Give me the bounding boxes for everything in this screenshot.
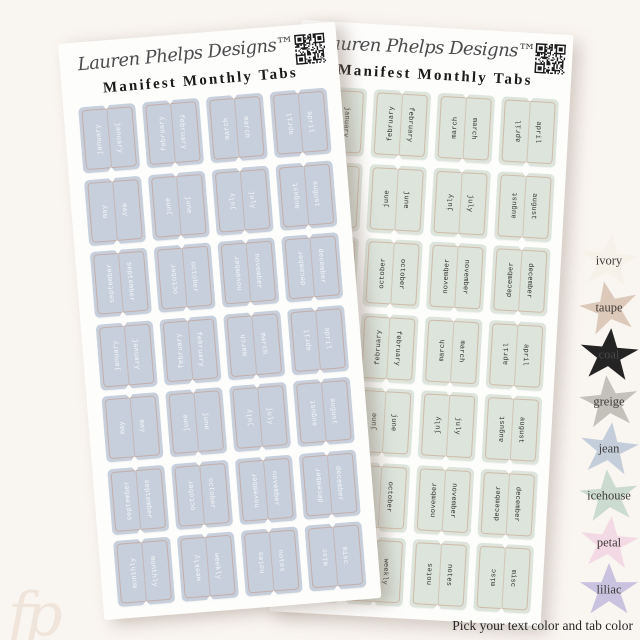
qr-code-icon xyxy=(294,33,326,65)
sticker-sheet-jean: Lauren Phelps Designs™ Manifest Monthly … xyxy=(58,22,381,620)
tab-label: july xyxy=(453,417,461,435)
tab-label-reversed: july xyxy=(229,192,237,210)
month-tab: september september xyxy=(107,464,169,534)
tab-fold-line xyxy=(315,311,321,369)
tab-label: march xyxy=(241,116,250,139)
tab-label: february xyxy=(177,115,187,151)
tab-fold-line xyxy=(501,548,505,608)
tab-fold-line xyxy=(135,471,141,529)
tab-fold-line xyxy=(193,393,199,451)
month-tab: november november xyxy=(413,465,474,536)
tab-fold-line xyxy=(304,166,310,224)
month-tab: weekly weekly xyxy=(176,532,238,602)
tab-fold-line xyxy=(378,467,382,527)
tab-label: december xyxy=(512,486,521,522)
tab-fold-line xyxy=(446,396,450,456)
month-tab: february february xyxy=(357,312,418,383)
month-tab: november november xyxy=(426,241,487,312)
tab-label: february xyxy=(194,331,204,367)
tab-label: weekly xyxy=(380,558,388,585)
tab-fold-line xyxy=(454,247,458,307)
tab-label-reversed: november xyxy=(430,482,439,518)
tab-fold-line xyxy=(251,316,257,374)
tab-label: october xyxy=(206,478,215,509)
swatch-label: ivory xyxy=(580,253,638,268)
tab-label-reversed: february xyxy=(159,116,169,152)
tab-label-reversed: november xyxy=(234,255,244,291)
tab-label-reversed: december xyxy=(506,262,515,298)
month-tab: november november xyxy=(217,237,279,307)
tab-label-reversed: april xyxy=(304,329,313,352)
tab-label: october xyxy=(397,258,406,289)
tab-label: january xyxy=(113,122,122,153)
month-tab: january january xyxy=(78,103,140,173)
tab-label-reversed: october xyxy=(379,257,388,288)
tab-fold-line xyxy=(188,321,194,379)
tab-label: notes xyxy=(444,564,452,586)
qr-code-icon xyxy=(534,43,566,75)
tab-label-reversed: february xyxy=(374,330,383,366)
color-swatch: greige xyxy=(580,375,638,428)
color-swatch: icehouse xyxy=(580,469,638,522)
tab-grid: january january february february march … xyxy=(63,79,381,609)
tab-label-reversed: monthly xyxy=(130,557,139,588)
tab-label: september xyxy=(124,262,134,302)
tab-label: december xyxy=(316,249,326,285)
color-swatch: coal xyxy=(580,328,638,381)
tab-label-reversed: may xyxy=(119,421,127,435)
tab-fold-line xyxy=(463,98,467,158)
tab-fold-line xyxy=(514,325,518,385)
tab-fold-line xyxy=(240,171,246,229)
color-swatch: taupe xyxy=(580,281,638,334)
swatch-label: taupe xyxy=(580,300,638,315)
tab-label-reversed: notes xyxy=(426,563,434,585)
month-tab: april april xyxy=(485,319,546,390)
tab-label-reversed: august xyxy=(292,182,301,209)
month-tab: august august xyxy=(292,377,354,447)
month-tab: july july xyxy=(229,382,291,452)
tab-label-reversed: march xyxy=(451,117,459,139)
tab-fold-line xyxy=(382,392,386,452)
tab-fold-line xyxy=(333,527,339,585)
month-tab: notes notes xyxy=(409,539,470,610)
tab-label: march xyxy=(469,118,477,140)
month-tab: july july xyxy=(417,390,478,461)
month-tab: april april xyxy=(286,304,348,374)
product-image: Lauren Phelps Designs™ Manifest Monthly … xyxy=(0,0,640,640)
color-swatch: jean xyxy=(580,422,638,475)
tab-label-reversed: october xyxy=(170,263,179,294)
tab-label: january xyxy=(130,339,139,370)
tab-label-reversed: june xyxy=(371,413,379,431)
color-swatch: liliac xyxy=(580,563,638,616)
tab-fold-line xyxy=(269,533,275,591)
tab-label: june xyxy=(401,191,409,209)
month-tab: misc misc xyxy=(304,521,366,591)
month-tab: february february xyxy=(370,89,431,160)
tab-fold-line xyxy=(390,243,394,303)
tab-label: october xyxy=(188,261,197,292)
month-tab: february february xyxy=(141,98,203,168)
month-tab: march march xyxy=(421,316,482,387)
tab-label: june xyxy=(183,196,191,214)
tab-fold-line xyxy=(399,95,403,155)
month-tab: december december xyxy=(281,232,343,302)
swatch-label: petal xyxy=(580,535,638,550)
tab-label: july xyxy=(264,407,272,425)
tab-label: march xyxy=(258,333,267,356)
tab-label: april xyxy=(305,111,314,134)
swatch-label: coal xyxy=(580,347,638,362)
tab-label: may xyxy=(119,203,127,217)
tab-label: april xyxy=(322,328,331,351)
month-tab: march march xyxy=(434,93,495,164)
tab-fold-line xyxy=(141,543,147,601)
tab-label: august xyxy=(310,181,319,208)
month-tab: june june xyxy=(147,170,209,240)
tab-label: november xyxy=(269,471,279,507)
month-tab: notes notes xyxy=(240,526,302,596)
month-tab: december december xyxy=(298,449,360,519)
tab-fold-line xyxy=(112,182,118,240)
tab-label: november xyxy=(460,260,469,296)
month-tab: march march xyxy=(205,93,267,163)
tab-label-reversed: misc xyxy=(490,569,498,587)
tab-fold-line xyxy=(170,104,176,162)
tab-label: monthly xyxy=(148,555,157,586)
tab-label: november xyxy=(448,483,457,519)
swatch-label: liliac xyxy=(580,582,638,597)
tab-label: july xyxy=(465,194,473,212)
tab-label-reversed: december xyxy=(315,467,325,503)
tab-label-reversed: july xyxy=(447,193,455,211)
month-tab: june june xyxy=(366,163,427,234)
tab-fold-line xyxy=(321,383,327,441)
tab-label-reversed: may xyxy=(102,204,110,218)
tab-label: weekly xyxy=(212,553,221,580)
tab-fold-line xyxy=(438,545,442,605)
tab-label: april xyxy=(533,121,541,143)
tab-label-reversed: august xyxy=(511,192,519,219)
month-tab: misc misc xyxy=(473,543,534,614)
tab-label: august xyxy=(328,398,337,425)
tab-fold-line xyxy=(199,465,205,523)
tab-label: may xyxy=(137,420,145,434)
month-tab: december december xyxy=(477,468,538,539)
tab-label: november xyxy=(252,254,262,290)
tab-label-reversed: january xyxy=(95,123,104,154)
month-tab: august august xyxy=(275,160,337,230)
tab-label-reversed: weekly xyxy=(194,554,203,581)
month-tab: october october xyxy=(153,242,215,312)
tab-label: june xyxy=(389,414,397,432)
tab-fold-line xyxy=(522,176,526,236)
tab-label: misc xyxy=(508,570,516,588)
watermark-monogram: fp xyxy=(8,580,57,640)
tab-fold-line xyxy=(394,169,398,229)
month-tab: june june xyxy=(165,387,227,457)
tab-label-reversed: july xyxy=(435,416,443,434)
tab-label-reversed: april xyxy=(287,112,296,135)
month-tab: january january xyxy=(95,320,157,390)
tab-fold-line xyxy=(309,238,315,296)
tab-label-reversed: december xyxy=(298,250,308,286)
month-tab: july july xyxy=(211,165,273,235)
tab-fold-line xyxy=(298,94,304,152)
tab-fold-line xyxy=(458,173,462,233)
month-tab: may may xyxy=(101,392,163,462)
tab-fold-line xyxy=(182,249,188,307)
tab-fold-line xyxy=(246,244,252,302)
tab-label-reversed: november xyxy=(442,259,451,295)
month-tab: october october xyxy=(171,459,233,529)
tab-label-reversed: notes xyxy=(258,551,267,574)
tab-label-reversed: september xyxy=(124,480,134,520)
brand-logo: Lauren Phelps Designs™ xyxy=(318,33,536,62)
color-swatch-list: ivory taupe coal greige jean xyxy=(580,234,638,610)
month-tab: february february xyxy=(159,315,221,385)
tab-fold-line xyxy=(124,326,130,384)
tab-label-reversed: june xyxy=(183,414,191,432)
month-tab: march march xyxy=(223,310,285,380)
month-tab: april april xyxy=(498,96,559,167)
tab-fold-line xyxy=(263,460,269,518)
tab-label-reversed: january xyxy=(112,340,121,371)
tab-label: september xyxy=(142,479,152,519)
swatch-label: greige xyxy=(580,394,638,409)
tab-label: october xyxy=(384,481,393,512)
tab-label: august xyxy=(529,193,537,220)
tab-label: february xyxy=(392,331,401,367)
month-tab: august august xyxy=(481,394,542,465)
month-tab: august august xyxy=(494,171,555,242)
tab-label-reversed: april xyxy=(515,120,523,142)
month-tab: october october xyxy=(362,238,423,309)
tab-label-reversed: october xyxy=(188,480,197,511)
month-tab: monthly monthly xyxy=(113,537,175,607)
caption: Pick your text color and tab color xyxy=(452,618,633,634)
tab-fold-line xyxy=(518,251,522,311)
tab-label-reversed: august xyxy=(498,415,506,442)
month-tab: december december xyxy=(489,245,550,316)
tab-fold-line xyxy=(234,99,240,157)
tab-label-reversed: march xyxy=(439,340,447,362)
tab-label: december xyxy=(333,466,343,502)
month-tab: may may xyxy=(83,175,145,245)
swatch-label: jean xyxy=(580,441,638,456)
tab-label: february xyxy=(405,107,414,143)
tab-fold-line xyxy=(118,254,124,312)
tab-fold-line xyxy=(176,176,182,234)
tab-fold-line xyxy=(205,538,211,596)
color-swatch: ivory xyxy=(580,234,638,287)
tab-label-reversed: august xyxy=(310,399,319,426)
tab-label: july xyxy=(247,190,255,208)
tab-label-reversed: september xyxy=(106,263,116,303)
tab-fold-line xyxy=(130,398,136,456)
tab-label: august xyxy=(516,416,524,443)
tab-fold-line xyxy=(526,102,530,162)
tab-label-reversed: november xyxy=(252,472,262,508)
tab-label-reversed: april xyxy=(503,343,511,365)
tab-fold-line xyxy=(327,455,333,513)
tab-fold-line xyxy=(506,474,510,534)
tab-label-reversed: march xyxy=(223,117,232,140)
tab-label-reversed: february xyxy=(176,333,186,369)
month-tab: november november xyxy=(234,454,296,524)
tab-label-reversed: july xyxy=(246,409,254,427)
tab-label: june xyxy=(201,412,209,430)
tab-label-reversed: march xyxy=(240,334,249,357)
tab-label: april xyxy=(521,344,529,366)
tab-label-reversed: june xyxy=(383,190,391,208)
tab-fold-line xyxy=(442,470,446,530)
tab-fold-line xyxy=(386,318,390,378)
color-swatch: petal xyxy=(580,516,638,569)
tab-label: notes xyxy=(276,550,285,573)
tab-fold-line xyxy=(257,388,263,446)
month-tab: july july xyxy=(430,167,491,238)
tab-label-reversed: february xyxy=(387,106,396,142)
tab-label-reversed: misc xyxy=(322,548,330,566)
tab-label-reversed: june xyxy=(165,197,173,215)
tab-label: december xyxy=(524,263,533,299)
tab-label-reversed: december xyxy=(494,485,503,521)
tab-label: misc xyxy=(340,547,348,565)
swatch-label: icehouse xyxy=(580,488,638,503)
month-tab: april april xyxy=(269,88,331,158)
tab-fold-line xyxy=(106,109,112,167)
tab-fold-line xyxy=(450,321,454,381)
month-tab: september september xyxy=(89,248,151,318)
tab-fold-line xyxy=(510,399,514,459)
tab-label: march xyxy=(457,341,465,363)
